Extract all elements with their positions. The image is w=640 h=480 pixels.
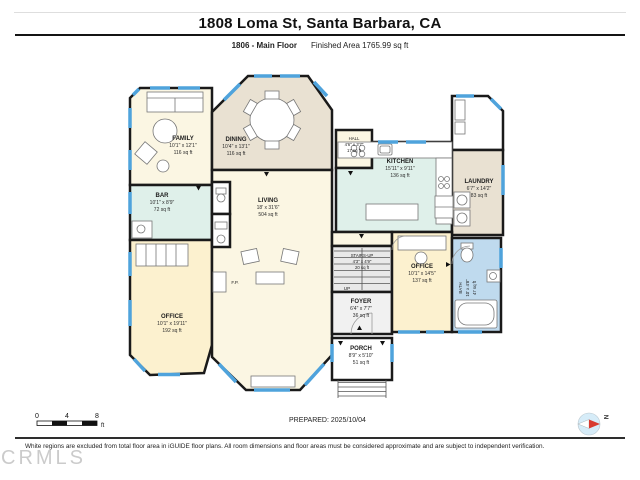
svg-text:15'11" x 9'11": 15'11" x 9'11" bbox=[385, 166, 415, 172]
porch-steps bbox=[338, 380, 386, 398]
svg-text:PORCH: PORCH bbox=[350, 346, 372, 352]
svg-text:BAR: BAR bbox=[156, 193, 170, 199]
svg-text:STAIRS-UP: STAIRS-UP bbox=[351, 253, 374, 258]
kitchen-island bbox=[366, 204, 418, 220]
svg-text:FOYER: FOYER bbox=[351, 299, 372, 305]
label-living: LIVING 18' x 31'6" 504 sq ft bbox=[257, 198, 280, 218]
fireplace-label: F.P. bbox=[231, 280, 238, 285]
desk bbox=[398, 236, 446, 250]
dining-chair bbox=[265, 91, 279, 99]
svg-text:10' x 4'8": 10' x 4'8" bbox=[465, 279, 470, 297]
compass-north-label: N bbox=[602, 415, 609, 420]
svg-text:4'3" x 4'9": 4'3" x 4'9" bbox=[353, 259, 372, 264]
svg-text:10'1" x 14'5": 10'1" x 14'5" bbox=[408, 271, 436, 277]
svg-text:51 sq ft: 51 sq ft bbox=[353, 360, 370, 366]
disclaimer-text: White regions are excluded from total fl… bbox=[25, 443, 625, 450]
powder-toilet bbox=[217, 194, 225, 202]
washer bbox=[454, 192, 470, 208]
scale-unit: ft bbox=[101, 423, 105, 429]
shelf bbox=[455, 100, 465, 120]
watermark: CRMLS bbox=[1, 447, 86, 470]
svg-text:LAUNDRY: LAUNDRY bbox=[464, 179, 493, 185]
scale-tick-0: 0 bbox=[35, 413, 39, 420]
svg-text:OFFICE: OFFICE bbox=[161, 314, 183, 320]
svg-text:BATH: BATH bbox=[458, 282, 463, 293]
floorplan-drawing: FAMILY 10'1" x 12'1" 116 sq ft DINING 10… bbox=[0, 0, 640, 480]
svg-text:83 sq ft: 83 sq ft bbox=[471, 193, 488, 199]
svg-text:6'7" x 14'2": 6'7" x 14'2" bbox=[467, 186, 492, 192]
dining-chair bbox=[265, 141, 279, 149]
svg-text:20 sq ft: 20 sq ft bbox=[355, 265, 370, 270]
ottoman bbox=[157, 160, 169, 172]
svg-text:6'4" x 7'7": 6'4" x 7'7" bbox=[350, 306, 372, 312]
svg-text:17 sq ft: 17 sq ft bbox=[347, 148, 362, 153]
rooms bbox=[130, 76, 503, 390]
svg-text:DINING: DINING bbox=[226, 137, 247, 143]
svg-text:10'4" x 13'1": 10'4" x 13'1" bbox=[222, 144, 250, 150]
svg-text:192 sq ft: 192 sq ft bbox=[162, 328, 182, 334]
svg-text:10'1" x 12'1": 10'1" x 12'1" bbox=[169, 143, 197, 149]
bath-sink bbox=[487, 270, 500, 282]
coffee-table bbox=[256, 272, 284, 284]
compass-icon: N bbox=[578, 413, 609, 435]
scale-tick-4: 4 bbox=[65, 413, 69, 420]
desk-chair bbox=[415, 252, 427, 264]
living-chair bbox=[281, 248, 299, 264]
svg-text:36 sq ft: 36 sq ft bbox=[353, 313, 370, 319]
daybed bbox=[136, 244, 188, 266]
svg-text:4'6" x 3'7": 4'6" x 3'7" bbox=[345, 142, 364, 147]
svg-text:OFFICE: OFFICE bbox=[411, 264, 433, 270]
scale-bar: 0 4 8 ft bbox=[35, 413, 105, 429]
dryer bbox=[454, 210, 470, 226]
svg-text:HALL: HALL bbox=[349, 136, 360, 141]
scale-tick-8: 8 bbox=[95, 413, 99, 420]
svg-text:116 sq ft: 116 sq ft bbox=[227, 151, 246, 157]
powder-sink bbox=[217, 235, 225, 243]
svg-text:FAMILY: FAMILY bbox=[172, 136, 193, 142]
window-seat bbox=[251, 376, 295, 387]
prepared-date: PREPARED: 2025/10/04 bbox=[289, 417, 366, 424]
svg-text:10'1" x 8'9": 10'1" x 8'9" bbox=[150, 200, 175, 206]
fireplace bbox=[213, 272, 226, 292]
bar-sink bbox=[137, 225, 145, 233]
living-chair bbox=[241, 248, 259, 264]
svg-text:136 sq ft: 136 sq ft bbox=[390, 173, 410, 179]
svg-text:47 sq ft: 47 sq ft bbox=[472, 280, 477, 295]
svg-text:137 sq ft: 137 sq ft bbox=[412, 278, 432, 284]
toilet bbox=[461, 248, 473, 262]
svg-text:18' x 31'6": 18' x 31'6" bbox=[257, 205, 280, 211]
floorplan-page: 1808 Loma St, Santa Barbara, CA 1806 - M… bbox=[0, 0, 640, 480]
svg-text:10'1" x 19'11": 10'1" x 19'11" bbox=[157, 321, 187, 327]
svg-text:504 sq ft: 504 sq ft bbox=[258, 212, 278, 218]
svg-text:8'9" x 5'10": 8'9" x 5'10" bbox=[349, 353, 374, 359]
footer-divider bbox=[15, 437, 625, 439]
up-label: UP bbox=[344, 286, 350, 291]
svg-text:116 sq ft: 116 sq ft bbox=[174, 150, 193, 156]
svg-text:KITCHEN: KITCHEN bbox=[387, 159, 414, 165]
label-foyer: FOYER 6'4" x 7'7" 36 sq ft bbox=[350, 299, 372, 319]
bathtub bbox=[455, 300, 497, 328]
svg-text:72 sq ft: 72 sq ft bbox=[154, 207, 171, 213]
svg-text:LIVING: LIVING bbox=[258, 198, 278, 204]
shelf bbox=[455, 122, 465, 134]
